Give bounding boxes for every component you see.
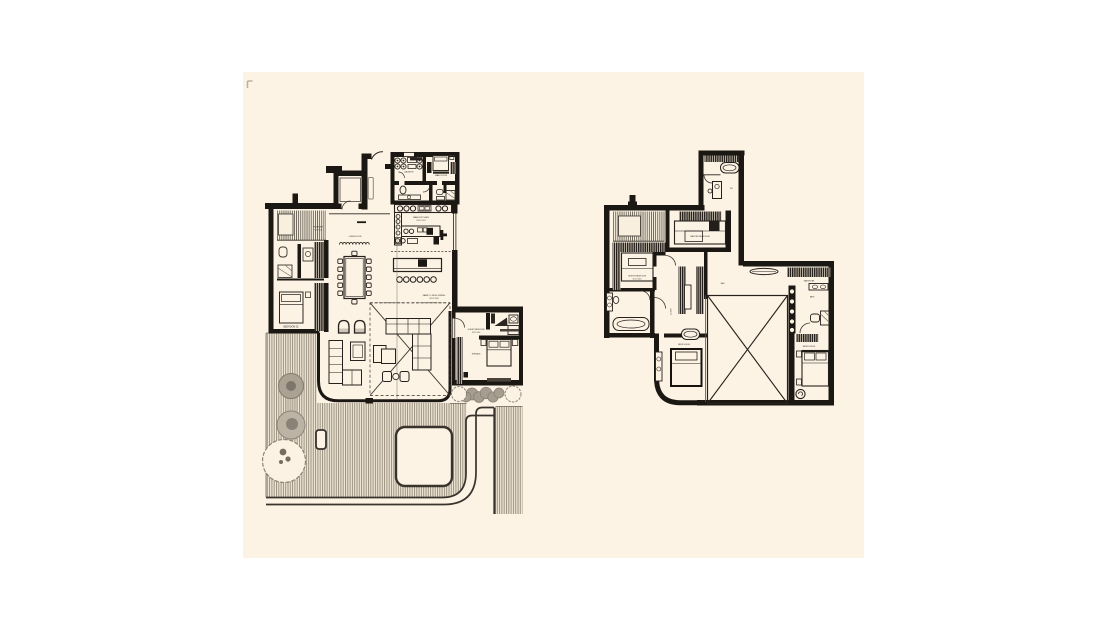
svg-text:TERRACE: TERRACE	[471, 353, 481, 356]
svg-text:GUEST BEDROOM: GUEST BEDROOM	[628, 276, 646, 278]
svg-text:FAMILY LIVING DINING: FAMILY LIVING DINING	[423, 294, 446, 297]
svg-text:BEDROOM 02: BEDROOM 02	[283, 327, 299, 329]
svg-text:13'2 X 16'0: 13'2 X 16'0	[472, 332, 480, 334]
svg-text:12'2 X 14'0: 12'2 X 14'0	[633, 278, 642, 280]
svg-text:MASTER BEDROOM: MASTER BEDROOM	[690, 235, 710, 238]
svg-text:WARDROBE: WARDROBE	[804, 280, 815, 283]
svg-text:7'1 X 8'4: 7'1 X 8'4	[314, 230, 323, 232]
svg-text:GUEST BEDROOM: GUEST BEDROOM	[468, 329, 485, 331]
svg-text:FOYER: FOYER	[716, 250, 723, 252]
svg-text:MAIN KITCHEN: MAIN KITCHEN	[413, 216, 429, 219]
svg-text:LAUNDRY: LAUNDRY	[404, 171, 414, 174]
svg-text:24'2 X 26'6: 24'2 X 26'6	[429, 298, 438, 300]
svg-text:12'6 X 16'2: 12'6 X 16'2	[416, 220, 425, 222]
svg-text:MAID ROOM: MAID ROOM	[435, 174, 447, 177]
svg-text:BEDROOM 04: BEDROOM 04	[678, 344, 690, 346]
svg-text:HALL: HALL	[721, 282, 726, 285]
svg-text:POWDER: POWDER	[313, 227, 323, 229]
svg-text:BEDROOM 03: BEDROOM 03	[803, 346, 815, 348]
svg-text:LIVING ROOM: LIVING ROOM	[349, 236, 362, 238]
svg-text:CLOSET: CLOSET	[671, 307, 673, 315]
